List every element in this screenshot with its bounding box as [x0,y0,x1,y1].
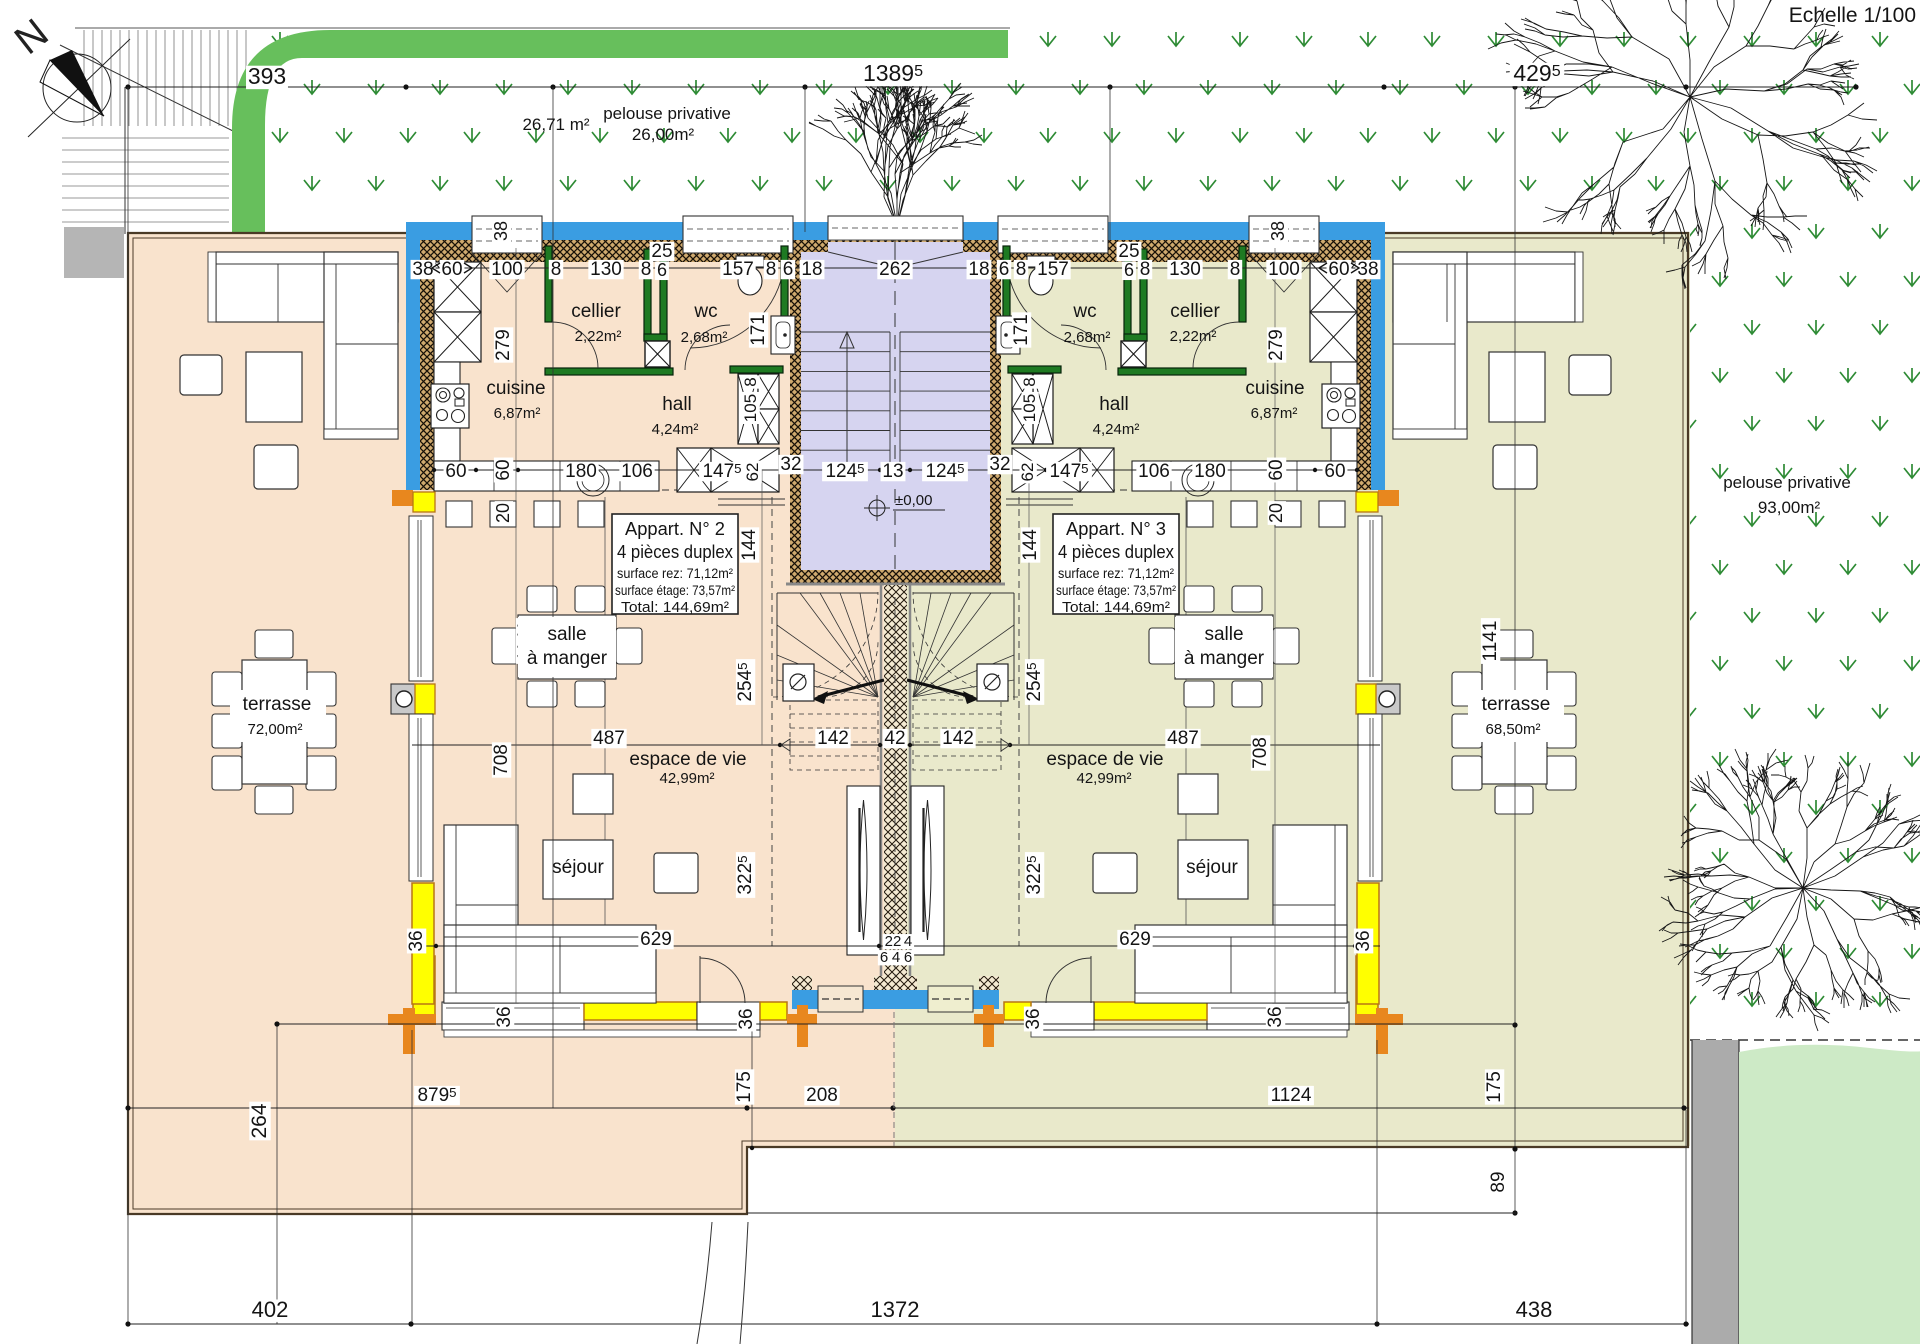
svg-text:Appart. N° 3: Appart. N° 3 [1066,519,1166,539]
svg-text:6: 6 [999,259,1010,280]
svg-text:8: 8 [766,259,777,280]
svg-text:487: 487 [593,728,625,749]
svg-text:8: 8 [551,259,562,280]
svg-text:130: 130 [1169,259,1201,280]
svg-text:62: 62 [1018,463,1037,482]
svg-text:25: 25 [1118,241,1139,262]
svg-text:262: 262 [879,259,911,280]
svg-text:6,87m²: 6,87m² [494,405,541,422]
svg-text:wc: wc [693,301,717,322]
svg-text:175: 175 [1484,1071,1505,1103]
svg-text:espace de vie: espace de vie [629,749,746,770]
svg-text:171: 171 [1011,314,1032,346]
svg-text:cuisine: cuisine [1245,378,1304,399]
svg-text:salle: salle [1204,624,1243,645]
svg-text:144: 144 [739,529,760,561]
svg-text:60: 60 [1328,259,1349,280]
svg-text:8: 8 [641,259,652,280]
svg-text:26,71 m²: 26,71 m² [522,115,589,134]
svg-text:175: 175 [734,1071,755,1103]
svg-text:surface rez: 71,12m²: surface rez: 71,12m² [1058,566,1174,581]
svg-text:18: 18 [801,259,822,280]
svg-text:487: 487 [1167,728,1199,749]
svg-text:68,50m²: 68,50m² [1485,721,1540,738]
svg-text:264: 264 [248,1103,271,1138]
svg-text:8: 8 [1230,259,1241,280]
svg-text:36: 36 [1023,1008,1044,1029]
svg-text:142: 142 [817,728,849,749]
svg-text:60: 60 [445,461,466,482]
svg-text:1141: 1141 [1480,621,1501,662]
svg-text:20: 20 [493,503,513,523]
svg-text:393: 393 [248,63,286,89]
svg-text:60: 60 [441,259,462,280]
svg-text:402: 402 [252,1297,289,1322]
svg-text:22: 22 [885,933,902,950]
svg-text:pelouse privative: pelouse privative [603,104,731,123]
svg-text:142: 142 [942,728,974,749]
svg-text:279: 279 [1266,329,1287,361]
svg-text:hall: hall [1099,394,1129,415]
svg-text:42: 42 [884,728,905,749]
svg-text:42,99m²: 42,99m² [659,770,714,787]
svg-text:6: 6 [904,949,912,966]
svg-text:13895: 13895 [863,60,923,86]
svg-text:36: 36 [736,1008,757,1029]
svg-text:20: 20 [1266,503,1286,523]
svg-text:60: 60 [1266,459,1287,480]
svg-text:8: 8 [741,377,760,386]
svg-text:62: 62 [743,463,762,482]
svg-text:hall: hall [662,394,692,415]
svg-text:438: 438 [1516,1297,1553,1322]
svg-text:2,22m²: 2,22m² [1170,328,1217,345]
svg-text:4 pièces duplex: 4 pièces duplex [617,542,733,562]
svg-text:42,99m²: 42,99m² [1076,770,1131,787]
svg-text:93,00m²: 93,00m² [1758,498,1821,517]
svg-text:13: 13 [882,461,903,482]
svg-text:cuisine: cuisine [486,378,545,399]
svg-text:6: 6 [657,260,667,280]
svg-text:4 pièces duplex: 4 pièces duplex [1058,542,1174,562]
svg-text:1124: 1124 [1271,1085,1312,1106]
svg-text:100: 100 [491,259,523,280]
svg-text:surface étage: 73,57m²: surface étage: 73,57m² [615,583,735,598]
svg-text:terrasse: terrasse [243,694,312,715]
svg-text:89: 89 [1488,1171,1509,1192]
svg-text:157: 157 [1037,259,1069,280]
svg-text:6,87m²: 6,87m² [1251,405,1298,422]
svg-text:38: 38 [412,259,433,280]
svg-text:Echelle 1/100: Echelle 1/100 [1789,4,1916,27]
svg-text:100: 100 [1268,259,1300,280]
svg-text:629: 629 [1119,929,1151,950]
svg-text:38: 38 [491,221,511,241]
svg-text:36: 36 [1265,1006,1286,1027]
svg-text:36: 36 [494,1006,515,1027]
svg-text:629: 629 [640,929,672,950]
svg-text:32: 32 [780,454,801,475]
svg-text:pelouse privative: pelouse privative [1723,473,1851,492]
svg-text:terrasse: terrasse [1482,694,1551,715]
svg-text:8: 8 [1020,377,1039,386]
svg-text:2,68m²: 2,68m² [681,329,728,346]
svg-text:1372: 1372 [871,1297,920,1322]
svg-text:38: 38 [1268,221,1288,241]
svg-text:séjour: séjour [552,857,604,878]
svg-text:espace de vie: espace de vie [1046,749,1163,770]
svg-text:171: 171 [748,314,769,346]
svg-text:708: 708 [1250,737,1271,769]
svg-text:6: 6 [783,259,794,280]
svg-text:à manger: à manger [1184,648,1265,669]
svg-text:208: 208 [806,1085,838,1106]
svg-text:±0,00: ±0,00 [895,492,932,509]
svg-text:180: 180 [565,461,597,482]
svg-text:32: 32 [989,454,1010,475]
svg-text:8: 8 [1140,259,1151,280]
svg-text:surface rez: 71,12m²: surface rez: 71,12m² [617,566,733,581]
svg-text:salle: salle [547,624,586,645]
svg-text:4,24m²: 4,24m² [1093,421,1140,438]
svg-text:105: 105 [1020,394,1039,422]
svg-text:séjour: séjour [1186,857,1238,878]
svg-text:18: 18 [968,259,989,280]
svg-text:38: 38 [1357,259,1378,280]
svg-text:cellier: cellier [1170,301,1220,322]
svg-text:wc: wc [1072,301,1096,322]
svg-text:144: 144 [1020,529,1041,561]
svg-text:2,22m²: 2,22m² [575,328,622,345]
svg-text:157: 157 [722,259,754,280]
svg-text:708: 708 [491,744,512,776]
svg-text:6: 6 [1124,260,1134,280]
svg-text:130: 130 [590,259,622,280]
svg-text:36: 36 [1353,930,1374,951]
svg-text:2,68m²: 2,68m² [1064,329,1111,346]
svg-text:60: 60 [1324,461,1345,482]
svg-text:4: 4 [892,949,900,966]
svg-text:8: 8 [1016,259,1027,280]
svg-text:25: 25 [651,241,672,262]
svg-text:Total: 144,69m²: Total: 144,69m² [1062,599,1170,616]
svg-text:4: 4 [904,933,912,950]
svg-text:105: 105 [741,394,760,422]
svg-text:cellier: cellier [571,301,621,322]
svg-text:6: 6 [880,949,888,966]
svg-text:Total: 144,69m²: Total: 144,69m² [621,599,729,616]
svg-text:106: 106 [1138,461,1170,482]
svg-text:surface étage: 73,57m²: surface étage: 73,57m² [1056,583,1176,598]
svg-text:106: 106 [621,461,653,482]
svg-text:à manger: à manger [527,648,608,669]
svg-text:60: 60 [493,459,514,480]
svg-text:279: 279 [493,329,514,361]
svg-text:Appart. N° 2: Appart. N° 2 [625,519,725,539]
svg-text:26,00m²: 26,00m² [632,125,695,144]
svg-text:180: 180 [1194,461,1226,482]
svg-text:36: 36 [406,930,427,951]
svg-text:72,00m²: 72,00m² [247,721,302,738]
svg-text:4,24m²: 4,24m² [652,421,699,438]
